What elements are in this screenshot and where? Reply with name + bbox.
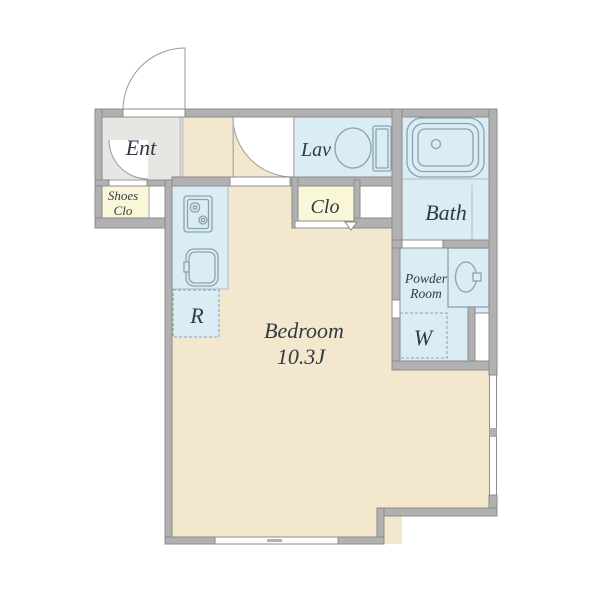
shoes-side-line: [148, 182, 149, 220]
bedroom-label: Bedroom: [264, 318, 344, 343]
wall-powder-bottom: [392, 361, 497, 370]
entry-door-swing: [123, 48, 185, 110]
powder-room-label-1: Powder: [404, 271, 448, 286]
hall-door-frame: [233, 117, 235, 177]
wall-powder-left-a: [392, 248, 400, 300]
entry-door-opening: [123, 109, 185, 117]
floor-plan-canvas: Ent Shoes Clo Lav Bath Clo Powder Room W…: [0, 0, 600, 600]
wall-left-lower: [165, 180, 172, 544]
vanity-sink-icon: [448, 248, 489, 307]
lav-label: Lav: [300, 139, 331, 161]
wall-right-upper: [489, 109, 497, 375]
ent-label: Ent: [125, 135, 157, 160]
bedroom-size-label: 10.3J: [277, 344, 327, 369]
wall-top: [185, 109, 497, 117]
wall-niche-divider: [468, 307, 475, 361]
closet-label: Clo: [311, 196, 340, 218]
wall-mid-b: [290, 177, 402, 186]
lav-door-frame: [293, 117, 294, 177]
bath-label: Bath: [425, 200, 467, 225]
pipe-space: [357, 182, 393, 218]
wall-mid-a: [172, 177, 230, 186]
wall-closet-left: [292, 177, 298, 228]
bedroom-floor-right: [393, 361, 497, 516]
floor-plan: Ent Shoes Clo Lav Bath Clo Powder Room W…: [0, 0, 600, 600]
wall-bath-bottom-a: [392, 240, 402, 248]
kitchen-counter: [170, 182, 228, 289]
ent-side-space: [149, 182, 167, 220]
shoes-closet-label-1: Shoes: [108, 188, 138, 203]
hall-opening: [230, 177, 290, 186]
bath-door-opening: [402, 240, 443, 248]
wall-shoes-top-a: [95, 180, 109, 186]
wall-bottom-b: [338, 537, 384, 544]
shoes-closet-label-2: Clo: [114, 203, 133, 218]
washer-label: W: [414, 325, 434, 350]
ent-step-line: [180, 117, 183, 180]
wall-lav-bath-divider: [392, 109, 402, 248]
bottom-window-tick: [267, 539, 282, 542]
shoes-door-opening: [109, 180, 147, 186]
wall-bottom-a: [165, 537, 215, 544]
wall-left-upper: [95, 109, 102, 228]
refrigerator-label: R: [189, 303, 204, 328]
right-window-tick: [490, 428, 497, 437]
niche-window: [475, 313, 490, 361]
powder-door-opening: [392, 300, 400, 318]
wall-step-horizontal: [377, 508, 497, 516]
powder-room-label-2: Room: [409, 286, 442, 301]
wall-shoes-bottom: [95, 218, 172, 228]
